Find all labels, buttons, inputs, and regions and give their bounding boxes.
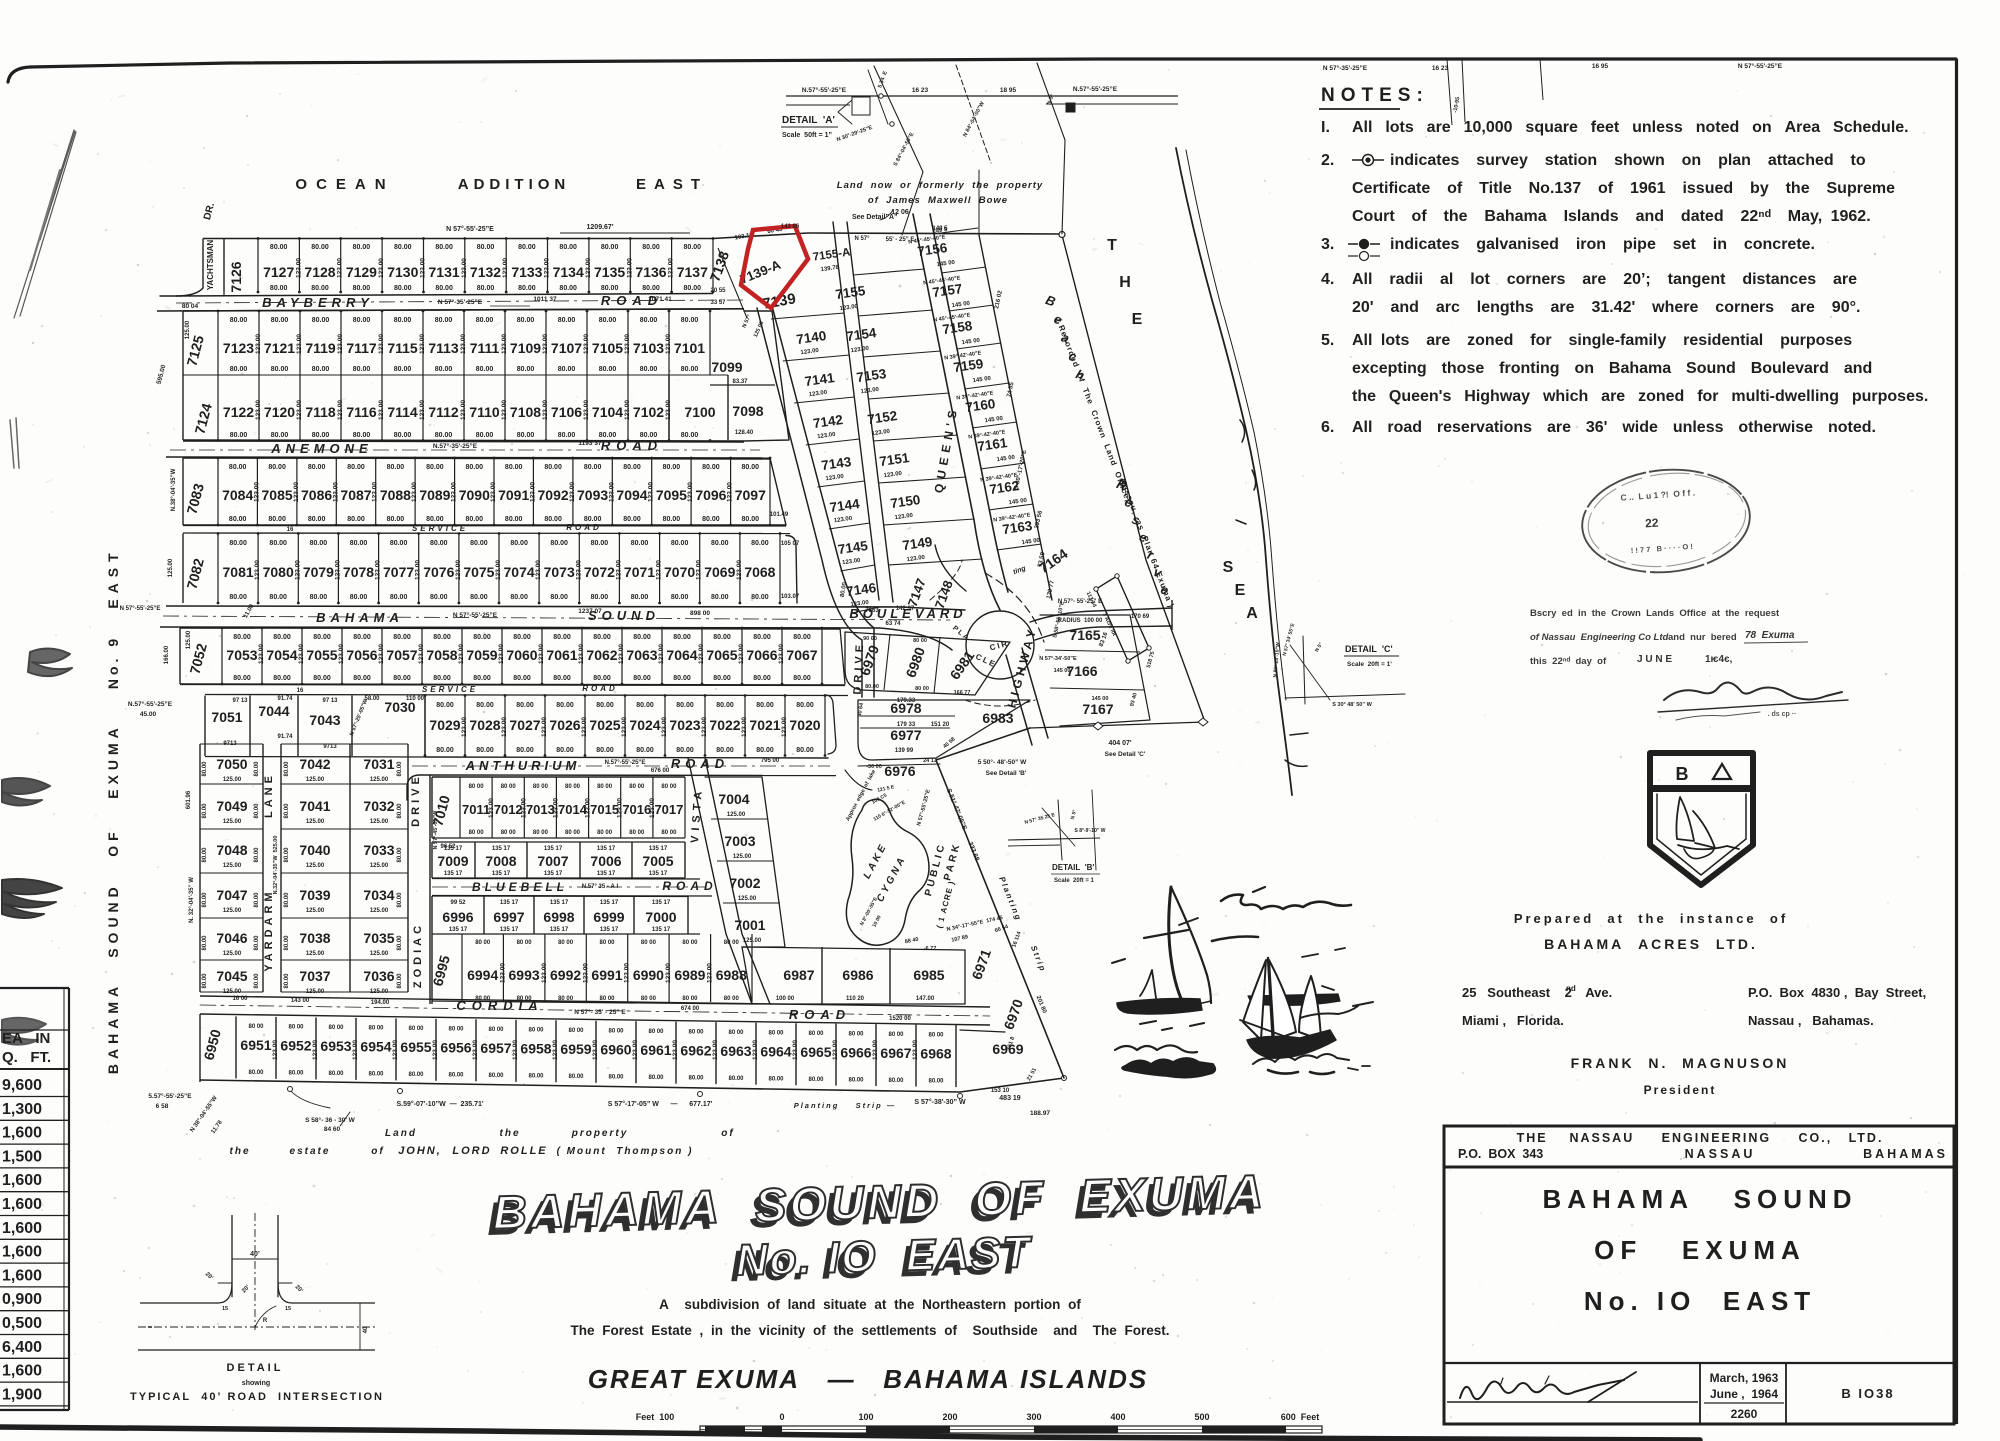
svg-text:125.00: 125.00 [223, 819, 242, 825]
svg-text:80.00: 80.00 [353, 675, 371, 682]
svg-text:80.00: 80.00 [473, 675, 491, 682]
svg-text:A: A [1246, 605, 1258, 622]
svg-text:80 00: 80 00 [688, 1030, 704, 1036]
svg-text:123.00: 123.00 [582, 963, 589, 983]
svg-text:80.00: 80.00 [435, 432, 453, 439]
svg-text:80.00: 80.00 [553, 675, 571, 682]
svg-text:80.00: 80.00 [716, 702, 734, 709]
svg-text:YARDARM: YARDARM [263, 888, 275, 971]
svg-text:6965: 6965 [800, 1044, 831, 1060]
svg-text:7055: 7055 [306, 647, 337, 663]
svg-text:Miami , Florida.: Miami , Florida. [1462, 1013, 1564, 1028]
svg-text:78 Exuma: 78 Exuma [1745, 630, 1795, 641]
svg-text:7070: 7070 [664, 564, 695, 580]
svg-text:84 60: 84 60 [324, 1126, 341, 1133]
svg-text:80.00: 80.00 [269, 540, 287, 547]
svg-text:80 00: 80 00 [641, 996, 657, 1002]
svg-text:80 00: 80 00 [661, 830, 677, 836]
svg-text:80.00: 80.00 [477, 285, 495, 292]
svg-text:123.00: 123.00 [665, 963, 672, 983]
svg-text:3.: 3. [1321, 236, 1334, 253]
svg-text:80.00: 80.00 [601, 285, 619, 292]
svg-text:123.00: 123.00 [626, 258, 633, 278]
svg-text:123.00: 123.00 [460, 334, 467, 354]
svg-text:1,600: 1,600 [2, 1220, 42, 1237]
svg-text:7064: 7064 [666, 647, 697, 663]
svg-text:103.07: 103.07 [781, 594, 800, 600]
svg-text:7072: 7072 [584, 564, 615, 580]
svg-text:123.00: 123.00 [432, 1040, 439, 1060]
svg-text:and nur bered: and nur bered [1668, 632, 1737, 643]
svg-text:EXUMA: EXUMA [105, 723, 121, 799]
svg-text:the Queen's Highway which: the Queen's Highway which are zoned for … [1352, 388, 1928, 405]
svg-text:80.00: 80.00 [751, 594, 769, 601]
svg-text:123.00: 123.00 [378, 258, 385, 278]
svg-text:80 00: 80 00 [568, 1028, 584, 1034]
svg-text:of Nassau Engineering Co Ltd: of Nassau Engineering Co Ltd [1530, 632, 1668, 643]
svg-text:80.00: 80.00 [426, 464, 444, 471]
svg-text:6959: 6959 [560, 1041, 591, 1057]
svg-text:7014: 7014 [558, 802, 588, 817]
svg-text:123.00: 123.00 [624, 400, 631, 420]
svg-text:7005: 7005 [642, 853, 673, 869]
svg-text:6993: 6993 [509, 967, 540, 983]
svg-text:80.00: 80.00 [269, 594, 287, 601]
svg-text:BAHAMA SOUND: BAHAMA SOUND [1542, 1184, 1857, 1214]
svg-text:123.00: 123.00 [419, 400, 426, 420]
svg-text:See Detail 'B': See Detail 'B' [986, 770, 1027, 777]
svg-text:149 5: 149 5 [932, 226, 948, 232]
svg-text:80.00: 80.00 [510, 540, 528, 547]
svg-text:123.00: 123.00 [294, 560, 301, 580]
svg-text:80 00: 80 00 [728, 1030, 744, 1036]
svg-text:125.00: 125.00 [306, 989, 325, 995]
svg-text:80.00: 80.00 [742, 516, 760, 523]
svg-text:7074: 7074 [504, 564, 535, 580]
svg-text:145 00: 145 00 [1092, 696, 1109, 702]
svg-text:6966: 6966 [840, 1044, 871, 1060]
svg-text:80 00: 80 00 [469, 830, 485, 836]
svg-text:S 57°-38'-30” W: S 57°-38'-30” W [914, 1098, 966, 1106]
svg-text:7039: 7039 [299, 887, 330, 903]
svg-text:7085: 7085 [262, 487, 293, 503]
svg-text:123.00: 123.00 [499, 963, 506, 983]
svg-text:N 57°-35'-25”E: N 57°-35'-25”E [438, 298, 483, 306]
svg-text:B: B [1676, 764, 1689, 784]
svg-text:80.00: 80.00 [408, 1072, 424, 1078]
svg-text:7166: 7166 [1066, 663, 1097, 679]
svg-text:135 17: 135 17 [649, 846, 668, 852]
svg-text:President: President [1644, 1083, 1717, 1097]
svg-text:123.00: 123.00 [378, 334, 385, 354]
svg-text:Bѕcrу еd in the Crown Lan: Bѕcrу еd in the Crown Lands Office at th… [1530, 608, 1780, 619]
svg-text:25 Southeast 2: 25 Southeast 2 [1462, 985, 1572, 1000]
svg-text:97 13: 97 13 [322, 698, 338, 704]
svg-text:80.00: 80.00 [271, 366, 289, 373]
svg-text:80.00: 80.00 [311, 244, 329, 251]
svg-text:7122: 7122 [223, 404, 254, 420]
svg-text:80.00: 80.00 [430, 594, 448, 601]
svg-text:indicates galvanised iron p: indicates galvanised iron pipe set in co… [1390, 236, 1815, 253]
svg-text:DETAIL 'C': DETAIL 'C' [1345, 644, 1393, 654]
svg-text:ROLLE: ROLLE [500, 1145, 547, 1157]
svg-text:JOHN,: JOHN, [398, 1145, 442, 1157]
svg-text:No. IO EAST: No. IO EAST [735, 1228, 1033, 1285]
svg-text:123.00: 123.00 [272, 1040, 279, 1060]
svg-text:80.00: 80.00 [928, 1078, 944, 1084]
svg-text:7126: 7126 [228, 261, 244, 292]
svg-text:123.00: 123.00 [451, 482, 458, 502]
svg-text:123.00: 123.00 [668, 258, 675, 278]
svg-text:80.00: 80.00 [476, 317, 494, 324]
svg-text:YACHTSMAN: YACHTSMAN [206, 240, 215, 291]
svg-text:123.00: 123.00 [624, 334, 631, 354]
svg-text:80.00: 80.00 [430, 540, 448, 547]
svg-text:80.00: 80.00 [642, 244, 660, 251]
svg-text:7165: 7165 [1069, 627, 1100, 643]
svg-text:7111: 7111 [470, 340, 500, 356]
svg-text:125.00: 125.00 [370, 989, 389, 995]
svg-text:125.00: 125.00 [370, 908, 389, 914]
svg-text:Planting Strip —: Planting Strip — [794, 1101, 897, 1110]
svg-text:80.00: 80.00 [888, 1078, 904, 1084]
svg-text:135 17: 135 17 [544, 846, 563, 852]
svg-text:80.00: 80.00 [347, 464, 365, 471]
svg-text:7037: 7037 [299, 968, 330, 984]
svg-text:7024: 7024 [629, 717, 660, 733]
svg-text:E: E [1235, 582, 1246, 599]
svg-text:0,500: 0,500 [2, 1315, 42, 1332]
svg-text:80.00: 80.00 [488, 1073, 504, 1079]
svg-text:6983: 6983 [982, 710, 1013, 726]
svg-text:0,900: 0,900 [2, 1291, 42, 1308]
svg-text:the: the [230, 1146, 251, 1157]
svg-text:123.00: 123.00 [542, 334, 549, 354]
svg-text:6,400: 6,400 [2, 1339, 42, 1356]
svg-text:7107: 7107 [551, 340, 582, 356]
svg-text:80.00: 80.00 [350, 594, 368, 601]
svg-text:7104: 7104 [592, 404, 623, 420]
svg-text:7029: 7029 [429, 717, 460, 733]
svg-text:7066: 7066 [746, 647, 777, 663]
svg-text:I.: I. [1321, 119, 1330, 136]
svg-text:The Forest Estate , in the vic: The Forest Estate , in the vicinity of t… [570, 1323, 1169, 1338]
svg-text:6962: 6962 [680, 1043, 711, 1059]
svg-text:6988: 6988 [716, 967, 747, 983]
svg-text:80.00: 80.00 [436, 702, 454, 709]
svg-text:80 00: 80 00 [528, 1028, 544, 1034]
svg-text:7068: 7068 [744, 564, 775, 580]
svg-text:7137: 7137 [677, 264, 708, 280]
svg-text:6955: 6955 [400, 1039, 431, 1055]
svg-text:80.00: 80.00 [550, 594, 568, 601]
svg-text:80.00: 80.00 [640, 366, 658, 373]
svg-text:7044: 7044 [258, 703, 289, 719]
svg-text:674 00: 674 00 [681, 1006, 700, 1012]
svg-text:16 00: 16 00 [232, 996, 248, 1002]
svg-text:7129: 7129 [346, 264, 377, 280]
svg-text:7135: 7135 [594, 264, 625, 280]
svg-text:ROAD: ROAD [789, 1007, 851, 1022]
svg-text:123.00: 123.00 [501, 717, 508, 737]
svg-text:6960: 6960 [600, 1042, 631, 1058]
svg-text:80 00: 80 00 [928, 1032, 944, 1038]
svg-text:7058: 7058 [426, 647, 457, 663]
svg-text:BAHAMA ACRES LTD.: BAHAMA ACRES LTD. [1544, 936, 1758, 952]
svg-text:6 58: 6 58 [156, 1103, 169, 1110]
svg-text:80.00: 80.00 [387, 516, 405, 523]
svg-text:123.00: 123.00 [727, 482, 734, 502]
svg-text:80.00: 80.00 [728, 1076, 744, 1082]
svg-text:80.00: 80.00 [553, 634, 571, 641]
svg-text:80.00: 80.00 [756, 702, 774, 709]
svg-text:80.00: 80.00 [284, 803, 290, 819]
svg-text:6989: 6989 [674, 967, 705, 983]
svg-text:125.00: 125.00 [306, 951, 325, 957]
svg-text:DETAIL 'B': DETAIL 'B' [1052, 863, 1094, 872]
svg-text:of: of [371, 1146, 384, 1157]
svg-text:7079: 7079 [303, 564, 334, 580]
svg-text:22: 22 [1645, 516, 1659, 531]
svg-text:B IO38: B IO38 [1841, 1386, 1894, 1401]
svg-text:80 00: 80 00 [408, 1026, 424, 1032]
svg-text:123.00: 123.00 [460, 400, 467, 420]
svg-text:80.00: 80.00 [202, 892, 208, 908]
svg-text:( Mount Thompson ): ( Mount Thompson ) [557, 1146, 694, 1157]
svg-text:123.00: 123.00 [255, 400, 262, 420]
svg-text:16 23: 16 23 [1432, 65, 1449, 72]
svg-text:80.00: 80.00 [796, 747, 814, 754]
svg-text:80 00: 80 00 [501, 784, 517, 790]
svg-text:7077: 7077 [383, 564, 414, 580]
svg-text:80.00: 80.00 [353, 366, 371, 373]
svg-text:80.00: 80.00 [254, 803, 260, 819]
svg-text:6957: 6957 [480, 1040, 511, 1056]
svg-text:80.00: 80.00 [518, 244, 536, 251]
svg-text:80.00: 80.00 [663, 464, 681, 471]
svg-text:40: 40 [363, 1326, 369, 1333]
svg-text:80.00: 80.00 [631, 540, 649, 547]
svg-text:GREAT EXUMA — BAHAMA ISLAN: GREAT EXUMA — BAHAMA ISLANDS [588, 1364, 1148, 1394]
svg-text:1209.67': 1209.67' [587, 224, 614, 231]
svg-text:6954: 6954 [360, 1039, 391, 1055]
svg-text:123.00: 123.00 [712, 1040, 719, 1060]
svg-text:80.00: 80.00 [466, 464, 484, 471]
svg-text:7078: 7078 [343, 564, 374, 580]
svg-text:200: 200 [942, 1412, 957, 1422]
svg-text:S 58°- 36 - 30' W: S 58°- 36 - 30' W [305, 1116, 356, 1124]
svg-text:7094: 7094 [616, 487, 647, 503]
svg-text:6961: 6961 [640, 1042, 671, 1058]
svg-text:166.00: 166.00 [164, 645, 170, 664]
svg-text:N.38°-04'-35”W: N.38°-04'-35”W [171, 468, 177, 511]
svg-text:6.: 6. [1321, 419, 1334, 436]
svg-text:80.00: 80.00 [688, 1076, 704, 1082]
svg-text:7098: 7098 [732, 403, 763, 419]
svg-text:123.00: 123.00 [254, 560, 261, 580]
svg-text:6991: 6991 [591, 967, 622, 983]
svg-text:188.97: 188.97 [1030, 1110, 1050, 1117]
svg-text:80.00: 80.00 [273, 634, 291, 641]
svg-text:7133: 7133 [511, 264, 542, 280]
svg-text:80.00: 80.00 [397, 761, 403, 777]
svg-text:80.00: 80.00 [254, 892, 260, 908]
svg-text:123.00: 123.00 [538, 644, 545, 664]
svg-text:Feet 100: Feet 100 [636, 1412, 675, 1422]
svg-text:80.00: 80.00 [601, 244, 619, 251]
svg-text:80.00: 80.00 [713, 634, 731, 641]
svg-text:Land: Land [385, 1128, 417, 1139]
svg-text:80.00: 80.00 [273, 675, 291, 682]
svg-text:7034: 7034 [363, 887, 394, 903]
svg-text:80.00: 80.00 [702, 464, 720, 471]
svg-text:80 00: 80 00 [288, 1025, 304, 1031]
svg-text:7043: 7043 [309, 712, 340, 728]
svg-text:80 00: 80 00 [848, 1031, 864, 1037]
svg-text:7123: 7123 [223, 340, 254, 356]
svg-text:SERVICE: SERVICE [412, 524, 468, 533]
svg-text:110 00: 110 00 [406, 696, 425, 702]
svg-text:123.00: 123.00 [585, 258, 592, 278]
svg-text:80.00: 80.00 [517, 432, 535, 439]
svg-text:7110: 7110 [469, 404, 500, 420]
svg-text:7056: 7056 [346, 647, 377, 663]
svg-text:125.00: 125.00 [306, 819, 325, 825]
svg-text:80.00: 80.00 [633, 675, 651, 682]
svg-text:123.00: 123.00 [334, 560, 341, 580]
svg-text:7092: 7092 [538, 487, 569, 503]
svg-text:123.00: 123.00 [458, 644, 465, 664]
svg-text:80.00: 80.00 [473, 634, 491, 641]
svg-text:80 00: 80 00 [608, 1029, 624, 1035]
svg-text:1193 37: 1193 37 [578, 440, 602, 447]
svg-text:Court of the Bahama Island: Court of the Bahama Islands and dated 22… [1352, 208, 1871, 225]
svg-text:S 8°-9'-10” W: S 8°-9'-10” W [1075, 828, 1106, 834]
svg-text:1,600: 1,600 [2, 1125, 42, 1142]
svg-text:179.33: 179.33 [897, 698, 916, 704]
svg-text:7076: 7076 [423, 564, 454, 580]
svg-text:7021: 7021 [749, 717, 780, 733]
svg-text:of James Maxwell Bowe: of James Maxwell Bowe [868, 195, 1008, 206]
svg-text:123.00: 123.00 [615, 560, 622, 580]
svg-text:80.00: 80.00 [591, 540, 609, 547]
svg-text:7006: 7006 [590, 853, 621, 869]
svg-text:80.00: 80.00 [636, 702, 654, 709]
svg-text:80.00: 80.00 [288, 1071, 304, 1077]
svg-text:147.00: 147.00 [916, 996, 935, 1002]
svg-text:80.00: 80.00 [229, 516, 247, 523]
svg-text:1,600: 1,600 [2, 1267, 42, 1284]
svg-text:N 57°-35'-25”E: N 57°-35'-25”E [1323, 64, 1368, 72]
svg-text:ADDITION: ADDITION [458, 176, 571, 193]
svg-text:80 00: 80 00 [533, 784, 549, 790]
svg-text:ROAD: ROAD [662, 879, 717, 893]
svg-text:135 17: 135 17 [500, 927, 519, 933]
svg-text:S.59°-07'-10”W — 235.71': S.59°-07'-10”W — 235.71' [396, 1100, 483, 1108]
svg-text:125.00: 125.00 [727, 812, 746, 818]
svg-text:80.00: 80.00 [353, 317, 371, 324]
svg-text:135 17: 135 17 [597, 846, 616, 852]
svg-text:7073: 7073 [544, 564, 575, 580]
svg-text:123.00: 123.00 [696, 560, 703, 580]
svg-text:135 17: 135 17 [492, 846, 511, 852]
svg-text:135 17: 135 17 [492, 871, 511, 877]
svg-text:80.00: 80.00 [633, 634, 651, 641]
svg-text:80.00: 80.00 [631, 594, 649, 601]
svg-text:7008: 7008 [485, 853, 516, 869]
svg-text:7136: 7136 [635, 264, 666, 280]
svg-text:Ave.: Ave. [1578, 985, 1612, 1000]
svg-text:123.00: 123.00 [621, 717, 628, 737]
svg-text:123.00: 123.00 [293, 482, 300, 502]
svg-text:ANTHURIUM: ANTHURIUM [465, 758, 581, 773]
svg-text:80.00: 80.00 [513, 675, 531, 682]
svg-text:80.00: 80.00 [435, 244, 453, 251]
svg-text:-30 00: -30 00 [866, 764, 882, 770]
svg-text:7127: 7127 [263, 264, 294, 280]
svg-text:33 57: 33 57 [710, 300, 726, 306]
svg-text:All road reservations are: All road reservations are 36' wide unles… [1352, 419, 1876, 436]
svg-text:7000: 7000 [645, 909, 676, 925]
svg-text:123.00: 123.00 [738, 644, 745, 664]
svg-text:45.00: 45.00 [140, 711, 157, 718]
svg-text:7119: 7119 [305, 340, 336, 356]
svg-text:80.00: 80.00 [202, 803, 208, 819]
svg-text:A subdivision of land situate: A subdivision of land situate at the Nor… [659, 1297, 1081, 1312]
svg-text:123.00: 123.00 [648, 482, 655, 502]
svg-text:123.00: 123.00 [736, 560, 743, 580]
svg-text:7007: 7007 [537, 853, 568, 869]
svg-text:All radii al lot corners: All radii al lot corners are 20’; tangen… [1352, 271, 1857, 288]
svg-text:96 52: 96 52 [440, 844, 456, 850]
svg-text:123.00: 123.00 [352, 1040, 359, 1060]
svg-text:600 Feet: 600 Feet [1281, 1412, 1320, 1422]
svg-text:123.00: 123.00 [832, 1040, 839, 1060]
svg-text:80.00: 80.00 [648, 1075, 664, 1081]
svg-text:80.00: 80.00 [390, 540, 408, 547]
svg-text:Q. FT.: Q. FT. [2, 1049, 51, 1066]
svg-text:6996: 6996 [442, 909, 473, 925]
svg-text:1,600: 1,600 [2, 1172, 42, 1189]
svg-text:123.00: 123.00 [552, 1040, 559, 1060]
svg-text:7117: 7117 [346, 340, 377, 356]
svg-text:7053: 7053 [226, 647, 257, 663]
svg-text:80.00: 80.00 [230, 432, 248, 439]
svg-text:7065: 7065 [706, 647, 737, 663]
svg-text:80.00: 80.00 [516, 747, 534, 754]
svg-text:7103: 7103 [633, 340, 664, 356]
svg-text:123.00: 123.00 [665, 334, 672, 354]
svg-text:CORDIA: CORDIA [456, 998, 543, 1013]
svg-text:135 17: 135 17 [600, 900, 619, 906]
svg-text:7057: 7057 [386, 647, 417, 663]
svg-text:6958: 6958 [520, 1041, 551, 1057]
svg-text:Land now or formerly the: Land now or formerly the property [837, 180, 1043, 191]
svg-text:P.O. Box 4830 , Bay Street: P.O. Box 4830 , Bay Street, [1748, 985, 1926, 1000]
svg-text:80.00: 80.00 [716, 747, 734, 754]
svg-text:1237 07: 1237 07 [578, 608, 602, 615]
svg-text:123.00: 123.00 [752, 1040, 759, 1060]
svg-text:80.00: 80.00 [308, 464, 326, 471]
svg-text:80.00: 80.00 [397, 973, 403, 989]
svg-text:N.57°-35'-25”E: N.57°-35'-25”E [433, 442, 478, 450]
svg-text:7015: 7015 [590, 802, 619, 817]
svg-text:80.00: 80.00 [593, 634, 611, 641]
svg-text:80.00: 80.00 [544, 516, 562, 523]
svg-text:BAHAMA: BAHAMA [105, 982, 121, 1074]
svg-text:80.00: 80.00 [596, 702, 614, 709]
svg-text:123.00: 123.00 [649, 798, 656, 818]
